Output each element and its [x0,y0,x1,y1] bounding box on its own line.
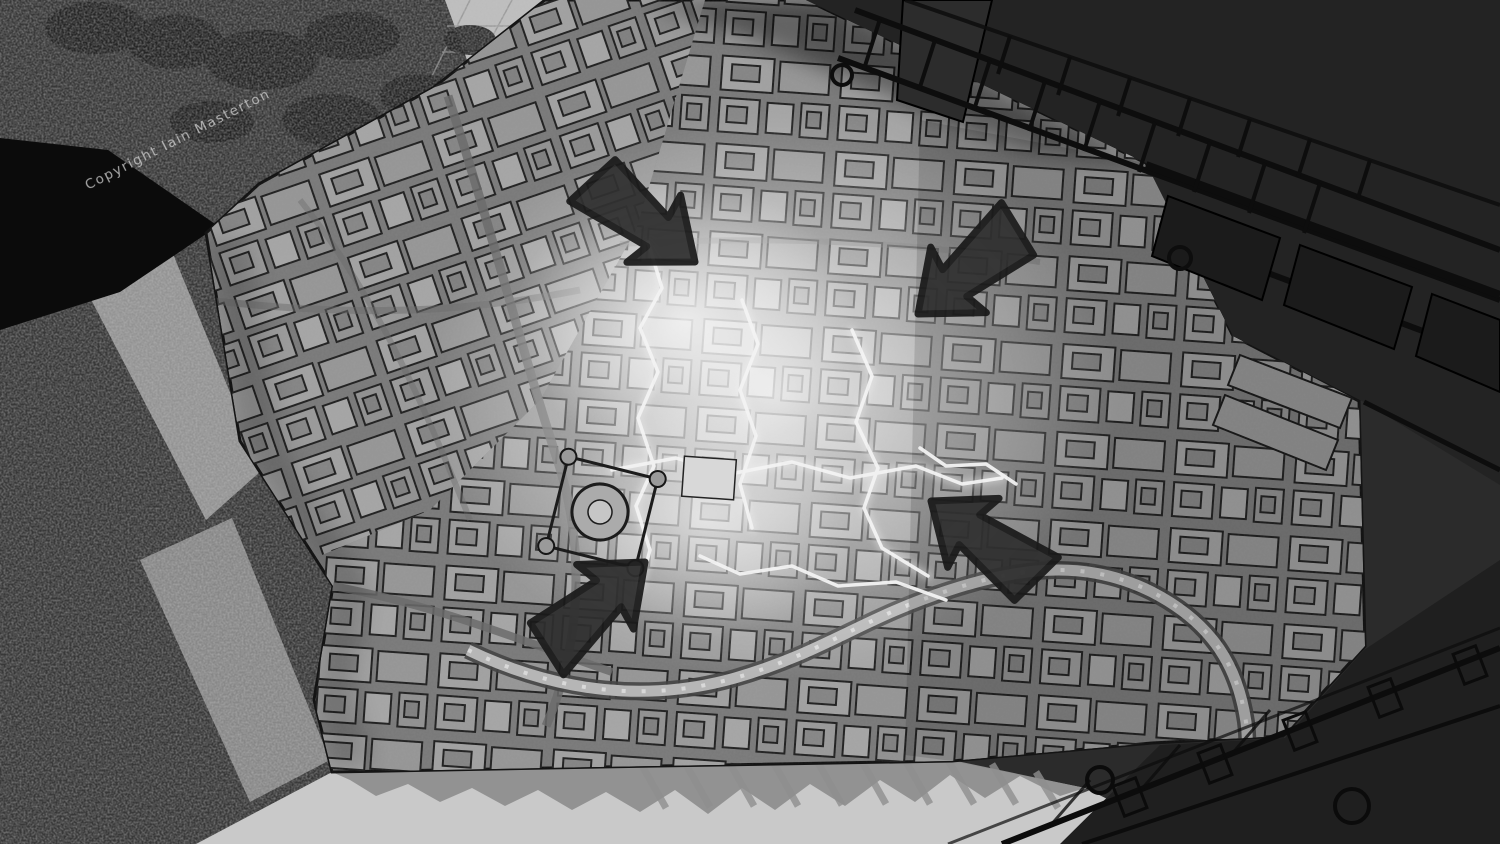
central-plaza [682,456,737,500]
concept-art-canvas: Copyright Iain Masterton [0,0,1500,844]
concept-art-stage: Copyright Iain Masterton [0,0,1500,844]
